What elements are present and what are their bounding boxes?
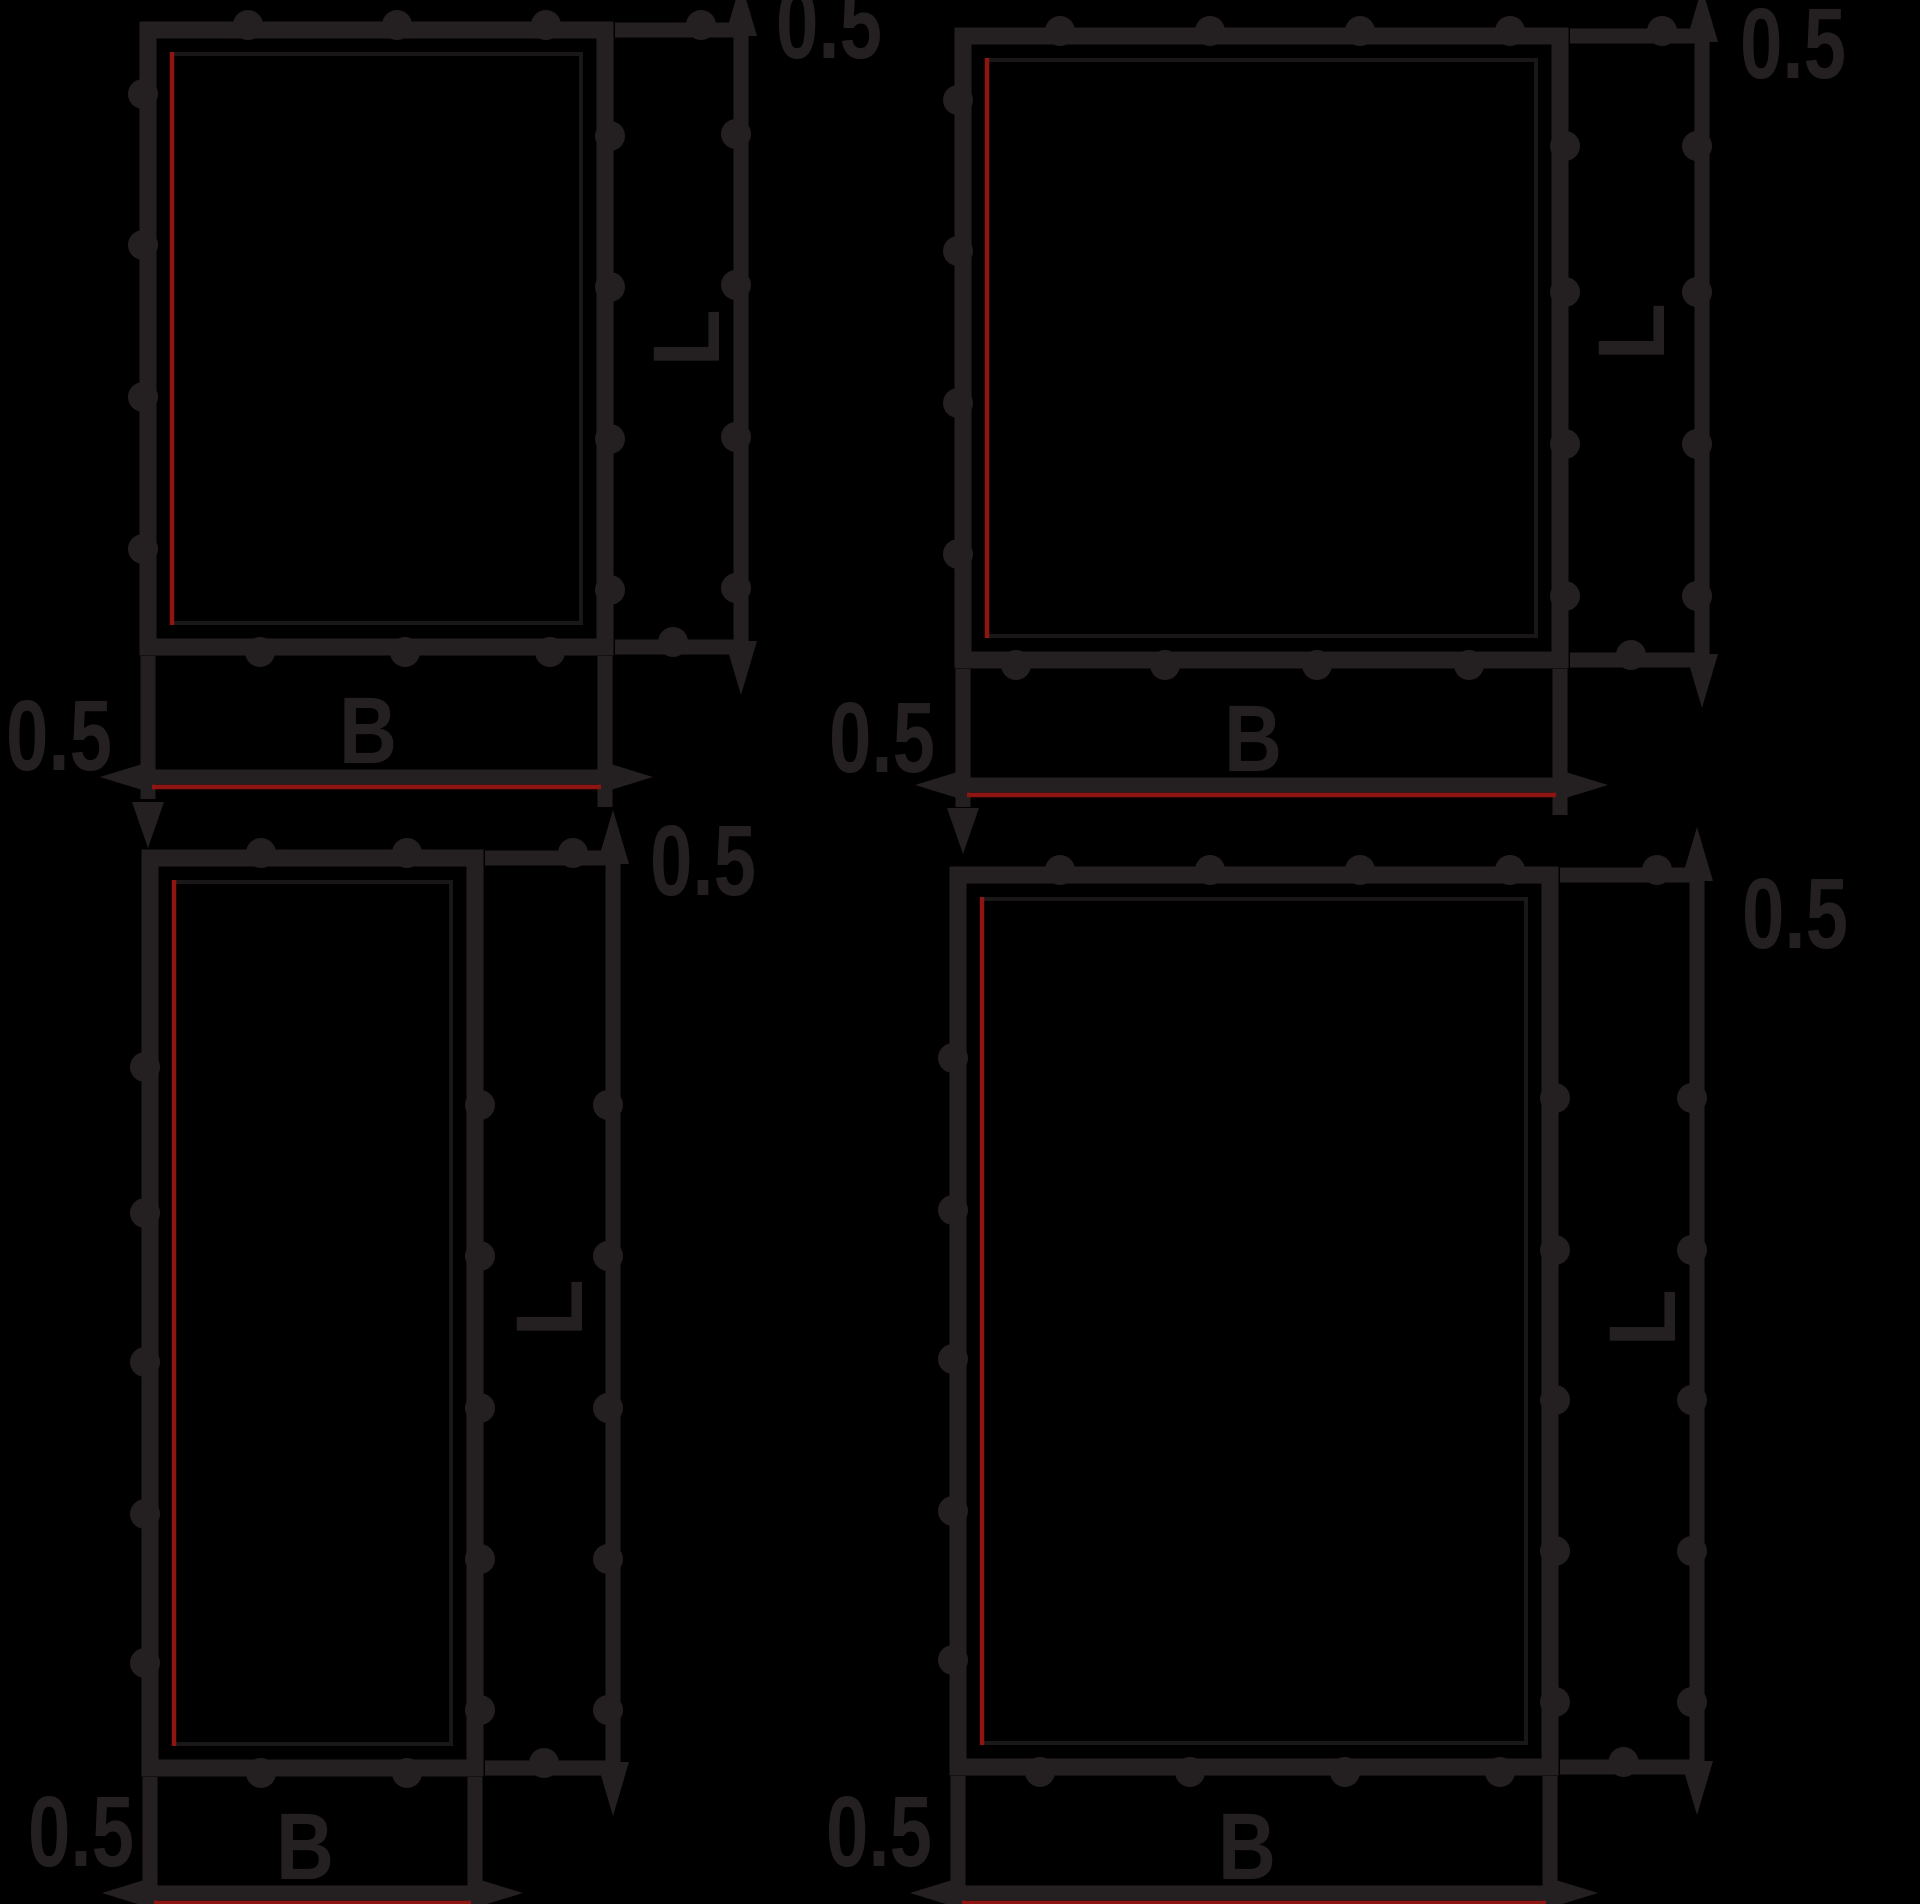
extension-bump-bottom [1609, 1747, 1639, 1777]
edge-bump-top [1495, 16, 1525, 46]
dimension-line-bump [1677, 1687, 1707, 1717]
edge-bump-right [595, 424, 625, 454]
edge-bump-left [130, 1347, 160, 1377]
edge-bump-right [1540, 1687, 1570, 1717]
extension-bump-top [558, 838, 588, 868]
edge-bump-bottom [1025, 1757, 1055, 1787]
edge-bump-top [382, 10, 412, 40]
edge-bump-left [938, 1496, 968, 1526]
edge-bump-left [938, 1043, 968, 1073]
dimension-line-bump [1682, 277, 1712, 307]
edge-bump-top [233, 10, 263, 40]
length-label: L [634, 309, 740, 367]
edge-bump-right [1540, 1536, 1570, 1566]
dimension-line-bump [1682, 131, 1712, 161]
edge-bump-top [531, 10, 561, 40]
dimension-line-bump [1677, 1385, 1707, 1415]
edge-bump-left [943, 85, 973, 115]
dimension-line-bump [1682, 429, 1712, 459]
edge-bump-left [128, 382, 158, 412]
offset-left-label: 0.5 [829, 682, 935, 794]
edge-bump-right [465, 1241, 495, 1271]
extension-bump-top [686, 10, 716, 40]
dimension-line-bump [721, 119, 751, 149]
edge-bump-bottom [1454, 650, 1484, 680]
edge-bump-bottom [1150, 650, 1180, 680]
offset-top-label: 0.5 [1742, 858, 1848, 970]
edge-bump-right [1540, 1235, 1570, 1265]
dimension-line-bump [593, 1695, 623, 1725]
edge-bump-right [1550, 429, 1580, 459]
length-label: L [1590, 1289, 1696, 1347]
edge-bump-right [1550, 277, 1580, 307]
edge-bump-bottom [392, 1758, 422, 1788]
dimension-line-bump [1677, 1536, 1707, 1566]
offset-left-label: 0.5 [826, 1776, 932, 1888]
edge-bump-left [130, 1052, 160, 1082]
edge-bump-top [1045, 855, 1075, 885]
edge-bump-left [938, 1195, 968, 1225]
edge-bump-top [1345, 16, 1375, 46]
dimension-line-bump [721, 573, 751, 603]
dimension-line-bump [593, 1241, 623, 1271]
edge-bump-top [392, 838, 422, 868]
dimension-line-bump [593, 1544, 623, 1574]
dimension-line-bump [1682, 581, 1712, 611]
edge-bump-top [1495, 855, 1525, 885]
extension-bump-top [1647, 16, 1677, 46]
offset-top-label: 0.5 [1740, 0, 1846, 100]
edge-bump-bottom [535, 637, 565, 667]
extension-bump-bottom [1616, 640, 1646, 670]
edge-bump-left [130, 1648, 160, 1678]
dimension-line-bump [721, 270, 751, 300]
edge-bump-top [1195, 16, 1225, 46]
edge-bump-right [465, 1695, 495, 1725]
edge-bump-right [1550, 131, 1580, 161]
edge-bump-left [130, 1499, 160, 1529]
length-label: L [1579, 303, 1685, 361]
edge-bump-top [1195, 855, 1225, 885]
extension-bump-bottom [658, 627, 688, 657]
edge-bump-top [1345, 855, 1375, 885]
dimension-line-bump [1677, 1083, 1707, 1113]
edge-bump-left [128, 230, 158, 260]
edge-bump-top [1045, 16, 1075, 46]
edge-bump-right [1540, 1083, 1570, 1113]
width-label: B [1224, 686, 1282, 792]
edge-bump-bottom [1001, 650, 1031, 680]
edge-bump-right [595, 121, 625, 151]
edge-bump-right [1540, 1385, 1570, 1415]
width-label: B [1218, 1794, 1276, 1900]
edge-bump-left [943, 539, 973, 569]
edge-bump-left [938, 1344, 968, 1374]
edge-bump-bottom [245, 637, 275, 667]
edge-bump-bottom [390, 637, 420, 667]
edge-bump-top [246, 838, 276, 868]
dimension-line-bump [1677, 1235, 1707, 1265]
edge-bump-right [465, 1544, 495, 1574]
edge-bump-bottom [1485, 1757, 1515, 1787]
edge-bump-left [130, 1198, 160, 1228]
technical-drawing-canvas: 0.50.5BL0.50.5BL0.50.5BL0.50.5BL [0, 0, 1920, 1904]
edge-bump-bottom [1330, 1757, 1360, 1787]
offset-top-label: 0.5 [776, 0, 882, 80]
dimension-line-bump [593, 1090, 623, 1120]
edge-bump-left [943, 236, 973, 266]
edge-bump-left [128, 534, 158, 564]
edge-bump-bottom [1302, 650, 1332, 680]
width-label: B [276, 1794, 334, 1900]
edge-bump-right [465, 1393, 495, 1423]
extension-bump-top [1642, 855, 1672, 885]
dimension-line-bump [721, 422, 751, 452]
offset-left-label: 0.5 [6, 680, 112, 792]
drawing-stage: 0.50.5BL0.50.5BL0.50.5BL0.50.5BL [0, 0, 1920, 1904]
edge-bump-right [595, 272, 625, 302]
width-label: B [339, 678, 397, 784]
edge-bump-right [595, 575, 625, 605]
edge-bump-left [943, 388, 973, 418]
offset-top-label: 0.5 [650, 805, 756, 917]
extension-bump-bottom [529, 1748, 559, 1778]
dimension-line-bump [593, 1393, 623, 1423]
offset-left-label: 0.5 [28, 1776, 134, 1888]
edge-bump-bottom [1175, 1757, 1205, 1787]
edge-bump-right [465, 1090, 495, 1120]
length-label: L [497, 1279, 603, 1337]
edge-bump-bottom [246, 1758, 276, 1788]
edge-bump-left [938, 1645, 968, 1675]
edge-bump-right [1550, 581, 1580, 611]
edge-bump-left [128, 79, 158, 109]
